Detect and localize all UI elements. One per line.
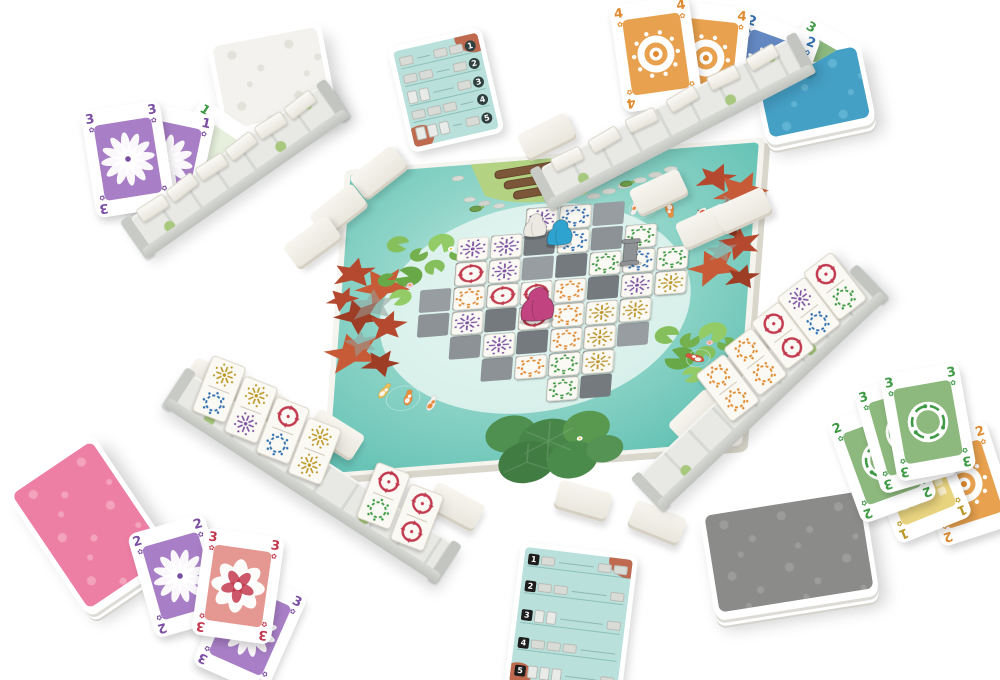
card-value: 1✿	[196, 116, 215, 140]
diagram-card	[546, 611, 558, 625]
hand-top-right: 3✿3✿3✿3✿2✿2✿2✿2✿4✿4✿4✿4✿4✿4✿4✿4✿	[608, 0, 609, 1]
card-value: 4✿	[610, 7, 628, 30]
card-value: 3✿	[881, 376, 899, 399]
path-stone	[419, 288, 452, 313]
diagram-tile	[433, 47, 449, 59]
garden-tile-yellow	[619, 298, 651, 323]
diagram-line	[581, 649, 616, 654]
diagram-tile	[541, 556, 556, 567]
diagram-card	[551, 668, 563, 680]
suit-pip-icon: ✿	[957, 445, 973, 454]
garden-tile-purple	[483, 333, 515, 358]
diagram-card	[426, 123, 439, 138]
path-stone	[617, 322, 650, 347]
garden-tile-yellow	[586, 300, 618, 325]
garden-tile-yellow	[582, 349, 614, 374]
garden-tile-purple	[489, 259, 521, 284]
diagram-card	[415, 126, 428, 141]
card-number: 3	[257, 626, 268, 642]
card-value: 3✿	[192, 610, 210, 633]
path-stone	[555, 253, 588, 278]
diagram-line	[437, 68, 450, 72]
diagram-tile	[553, 585, 568, 596]
diagram-card	[438, 120, 451, 135]
path-stone	[579, 373, 612, 398]
path-stone	[592, 201, 625, 226]
card-value: 2✿	[128, 534, 148, 558]
garden-tile-green	[548, 352, 580, 377]
suit-pip-icon: ✿	[94, 192, 110, 201]
step-number-badge: 3	[472, 75, 485, 88]
diagram-tile	[613, 565, 628, 576]
card-motif	[96, 127, 160, 191]
step-number-badge: 3	[521, 608, 533, 620]
diagram-tile	[546, 641, 561, 652]
diagram-tile	[448, 43, 464, 55]
card-number: 3	[195, 618, 206, 634]
step-number-badge: 5	[514, 665, 526, 677]
card-motif	[206, 554, 269, 617]
diagram-tile	[599, 676, 614, 680]
card-art-peony	[204, 544, 272, 627]
diagram-line	[433, 87, 454, 93]
garden-tile-orange	[550, 327, 582, 352]
card-value: 3✿	[943, 365, 961, 388]
gray-deck-back-pattern	[704, 491, 873, 612]
diagram-tile	[456, 79, 472, 91]
diagram-line	[453, 123, 462, 126]
diagram-tile	[597, 563, 612, 574]
diagram-tile	[442, 101, 458, 113]
card-value: 3✿	[255, 619, 273, 642]
path-stone	[516, 329, 549, 354]
path-stone	[417, 313, 450, 338]
hand-top-left: 1↓1↓1↓1↓1✿1✿1✿1✿3✿3✿3✿3✿	[88, 105, 89, 106]
card-number: 3	[98, 200, 109, 216]
card-art-koi	[893, 380, 963, 465]
garden-tile-yellow	[655, 270, 687, 295]
diagram-line	[461, 101, 474, 105]
diagram-tile	[403, 72, 419, 84]
reference-card-bottom: 12345	[504, 541, 639, 680]
diagram-card	[418, 87, 431, 102]
garden-tile-red	[455, 261, 487, 286]
garden-tile-green	[547, 377, 579, 402]
diagram-tile	[452, 61, 468, 73]
diagram-tile	[562, 643, 577, 654]
reference-row: 2	[524, 579, 625, 605]
garden-tile-green	[657, 246, 689, 271]
step-number-badge: 1	[464, 39, 477, 52]
diagram-tile	[399, 55, 415, 67]
path-stone	[480, 357, 513, 382]
reference-row: 4	[517, 636, 618, 662]
card-motif	[896, 390, 961, 455]
diagram-line	[565, 676, 596, 680]
card-value: 3✿	[94, 192, 112, 215]
garden-tile-purple	[621, 273, 653, 298]
card-red-3: 3✿3✿3✿3✿	[191, 527, 285, 645]
lotus-leaves-bottom	[482, 407, 627, 487]
diagram-card	[406, 89, 419, 104]
step-number-badge: 2	[468, 57, 481, 70]
step-number-badge: 2	[524, 580, 536, 592]
diagram-line	[559, 562, 594, 567]
garden-tile-purple	[451, 311, 483, 336]
card-art-rosette	[93, 117, 162, 201]
diagram-tile	[418, 68, 434, 80]
card-number: 3	[961, 452, 973, 468]
diagram-card	[527, 665, 539, 679]
garden-tile-green	[589, 251, 621, 276]
reference-row: 3	[520, 606, 621, 634]
step-number-badge: 1	[528, 553, 540, 565]
step-number-badge: 4	[517, 636, 529, 648]
card-value: 4✿	[622, 87, 640, 110]
diagram-tile	[427, 105, 443, 117]
board-game-product-photo: 1↓1↓1↓1↓1✿1✿1✿1✿3✿3✿3✿3✿3✿3✿3✿3✿2✿2✿2✿2✿…	[0, 0, 1000, 680]
diagram-tile	[530, 639, 545, 650]
diagram-tile	[610, 592, 625, 603]
diagram-line	[417, 55, 430, 59]
card-art-mandala	[622, 12, 690, 95]
step-number-badge: 5	[480, 111, 493, 124]
card-value: 4✿	[733, 10, 750, 32]
suit-pip-icon: ✿	[895, 456, 911, 465]
hand-right: 2✿2✿2✿2✿1✿1✿1✿1✿2✿2✿2✿2✿3✿3✿3✿3✿3✿3✿3✿3✿	[836, 368, 837, 369]
garden-tile-purple	[490, 234, 522, 259]
card-motif	[624, 22, 687, 85]
card-number: 4	[625, 94, 636, 110]
diagram-tile	[411, 109, 427, 121]
path-stone	[587, 275, 620, 300]
diagram-tile	[465, 115, 481, 127]
garden-tile-orange	[515, 355, 547, 380]
card-value: 3✿	[957, 445, 975, 468]
reference-row: 1	[527, 552, 628, 578]
card-value: 3✿	[144, 103, 162, 126]
suit-pip-icon: ✿	[204, 544, 220, 553]
hand-bottom-left: 3✿3✿3✿3✿2✿2✿2✿2✿3✿3✿3✿3✿	[140, 520, 141, 521]
step-number-badge: 4	[476, 93, 489, 106]
garden-tile-orange	[453, 286, 485, 311]
garden-tile-orange	[554, 278, 586, 303]
garden-tile-red	[487, 283, 519, 308]
garden-tile-yellow	[584, 325, 616, 350]
card-value: 4✿	[673, 0, 691, 21]
reference-row: 5	[514, 663, 615, 680]
diagram-card	[539, 667, 551, 680]
card-value: 3✿	[854, 390, 874, 414]
card-value: 3✿	[204, 530, 222, 553]
diagram-tile	[606, 620, 621, 631]
garden-tile-orange	[552, 303, 584, 328]
path-stone	[449, 335, 482, 360]
suit-pip-icon: ✿	[622, 87, 638, 96]
diagram-card	[534, 609, 546, 623]
card-value: 3✿	[266, 539, 284, 562]
card-value: 3✿	[82, 112, 100, 135]
path-stone	[484, 307, 517, 332]
suit-pip-icon: ✿	[733, 24, 749, 33]
diagram-line	[560, 618, 603, 624]
diagram-line	[572, 591, 607, 596]
path-stone	[521, 255, 554, 280]
card-number: 3	[899, 463, 911, 479]
diagram-tile	[537, 583, 552, 594]
path-stone	[590, 226, 623, 251]
garden-tile-purple	[457, 237, 489, 262]
